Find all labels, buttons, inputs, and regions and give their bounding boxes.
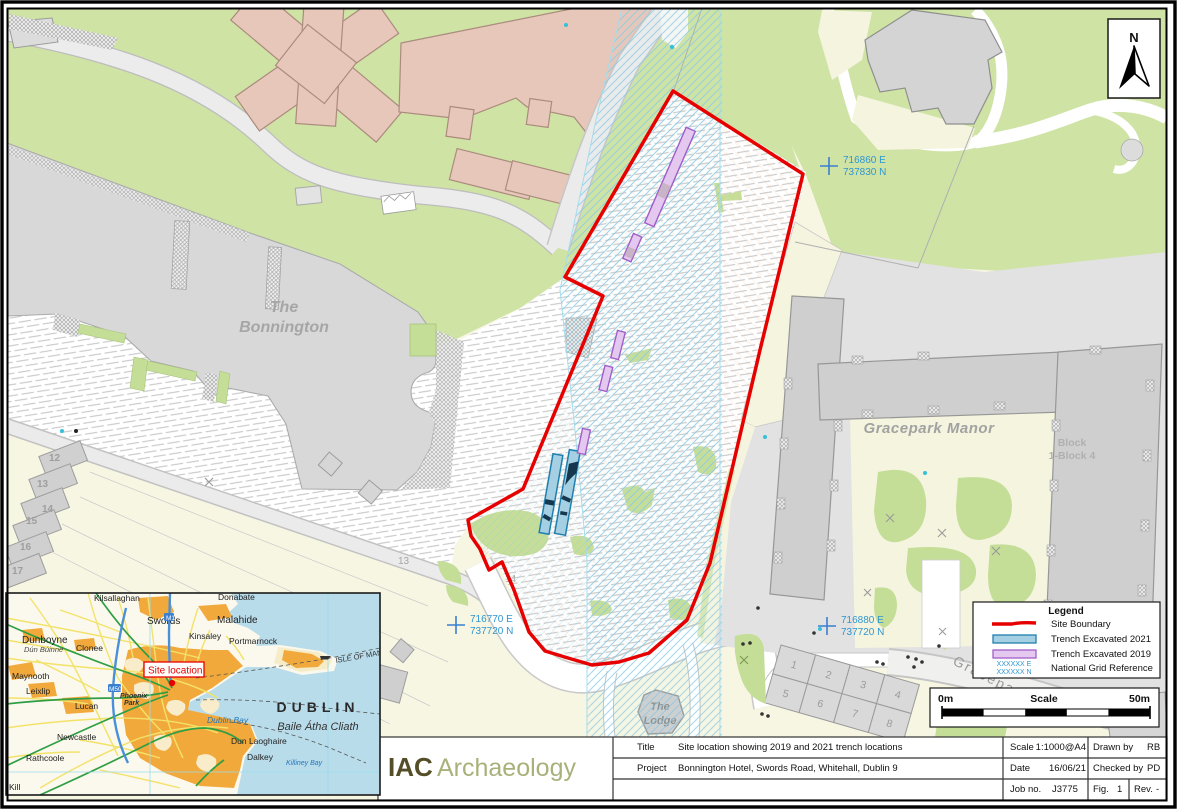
- svg-text:National Grid Reference: National Grid Reference: [1051, 663, 1153, 674]
- svg-text:XXXXXX N: XXXXXX N: [996, 669, 1031, 676]
- svg-text:Site Boundary: Site Boundary: [1051, 619, 1111, 630]
- svg-text:Drawn by: Drawn by: [1093, 742, 1133, 753]
- svg-text:Dalkey: Dalkey: [247, 752, 274, 762]
- svg-text:N: N: [1129, 30, 1138, 45]
- svg-text:737720 N: 737720 N: [470, 626, 513, 637]
- svg-text:Legend: Legend: [1048, 606, 1084, 617]
- svg-text:Dun Laoghaire: Dun Laoghaire: [231, 736, 287, 746]
- svg-text:Rev.: Rev.: [1134, 784, 1153, 795]
- svg-text:Bonnington Hotel, Swords Road,: Bonnington Hotel, Swords Road, Whitehall…: [678, 763, 898, 774]
- svg-text:1-Block 4: 1-Block 4: [1049, 450, 1096, 462]
- svg-text:Park: Park: [124, 700, 140, 707]
- svg-text:Date: Date: [1010, 763, 1030, 774]
- svg-text:Killiney Bay: Killiney Bay: [286, 760, 323, 767]
- svg-text:PD: PD: [1147, 763, 1160, 774]
- svg-text:716880 E: 716880 E: [841, 615, 884, 626]
- svg-text:Leixlip: Leixlip: [26, 686, 50, 696]
- svg-text:Title: Title: [637, 742, 655, 753]
- svg-text:Gracepark Manor: Gracepark Manor: [864, 420, 996, 437]
- svg-text:Project: Project: [637, 763, 667, 774]
- svg-text:Baile Átha Cliath: Baile Átha Cliath: [277, 720, 358, 733]
- svg-text:Fig.: Fig.: [1093, 784, 1109, 795]
- svg-text:RB: RB: [1147, 742, 1160, 753]
- svg-text:0m: 0m: [938, 693, 953, 705]
- svg-text:Maynooth: Maynooth: [12, 671, 50, 681]
- svg-text:Rathcoole: Rathcoole: [26, 753, 65, 763]
- svg-text:Kinsaley: Kinsaley: [189, 631, 222, 641]
- svg-text:16: 16: [20, 542, 32, 553]
- svg-text:Site location showing 2019 and: Site location showing 2019 and 2021 tren…: [678, 742, 903, 753]
- svg-text:15: 15: [26, 516, 38, 527]
- svg-text:Trench Excavated 2021: Trench Excavated 2021: [1051, 634, 1151, 645]
- svg-text:Trench Excavated 2019: Trench Excavated 2019: [1051, 649, 1151, 660]
- svg-text:Checked by: Checked by: [1093, 763, 1143, 774]
- svg-text:DUBLIN: DUBLIN: [277, 699, 360, 715]
- svg-text:13: 13: [398, 556, 410, 567]
- svg-text:14: 14: [42, 504, 54, 515]
- svg-text:716770 E: 716770 E: [470, 614, 513, 625]
- svg-text:Portmarnock: Portmarnock: [229, 636, 278, 646]
- svg-text:IAC: IAC: [388, 752, 433, 782]
- svg-text:1: 1: [1117, 784, 1122, 795]
- svg-text:M50: M50: [109, 686, 122, 693]
- svg-text:16/06/21: 16/06/21: [1049, 763, 1086, 774]
- svg-text:716860 E: 716860 E: [843, 155, 886, 166]
- svg-text:Kilsallaghan: Kilsallaghan: [94, 593, 140, 603]
- svg-text:Clonee: Clonee: [76, 643, 103, 653]
- svg-text:J3775: J3775: [1052, 784, 1078, 795]
- svg-text:Archaeology: Archaeology: [437, 754, 576, 782]
- svg-text:Swords: Swords: [147, 616, 180, 627]
- svg-text:50m: 50m: [1129, 693, 1150, 705]
- svg-text:Bonnington: Bonnington: [239, 319, 329, 336]
- svg-text:Dún Búinne: Dún Búinne: [24, 645, 63, 654]
- svg-text:Scale: Scale: [1010, 742, 1034, 753]
- svg-text:Newcastle: Newcastle: [57, 732, 96, 742]
- svg-text:13: 13: [37, 479, 49, 490]
- svg-text:Lucan: Lucan: [75, 701, 98, 711]
- svg-text:Job no.: Job no.: [1010, 784, 1041, 795]
- svg-text:Phoenix: Phoenix: [120, 693, 148, 700]
- svg-text:Site location: Site location: [148, 666, 202, 677]
- svg-text:12: 12: [49, 453, 61, 464]
- svg-text:XXXXXX E: XXXXXX E: [997, 661, 1032, 668]
- svg-text:Block: Block: [1058, 437, 1087, 449]
- svg-text:737720 N: 737720 N: [841, 627, 884, 638]
- svg-text:737830 N: 737830 N: [843, 167, 886, 178]
- svg-text:The: The: [270, 299, 299, 316]
- svg-text:1:1000@A4: 1:1000@A4: [1036, 742, 1086, 753]
- svg-text:M1: M1: [166, 615, 175, 622]
- svg-text:Malahide: Malahide: [217, 615, 258, 626]
- svg-text:Kill: Kill: [9, 782, 20, 792]
- svg-text:Dublin Bay: Dublin Bay: [207, 715, 249, 725]
- svg-text:-: -: [1156, 784, 1159, 795]
- svg-text:Scale: Scale: [1030, 693, 1058, 705]
- svg-text:17: 17: [12, 566, 24, 577]
